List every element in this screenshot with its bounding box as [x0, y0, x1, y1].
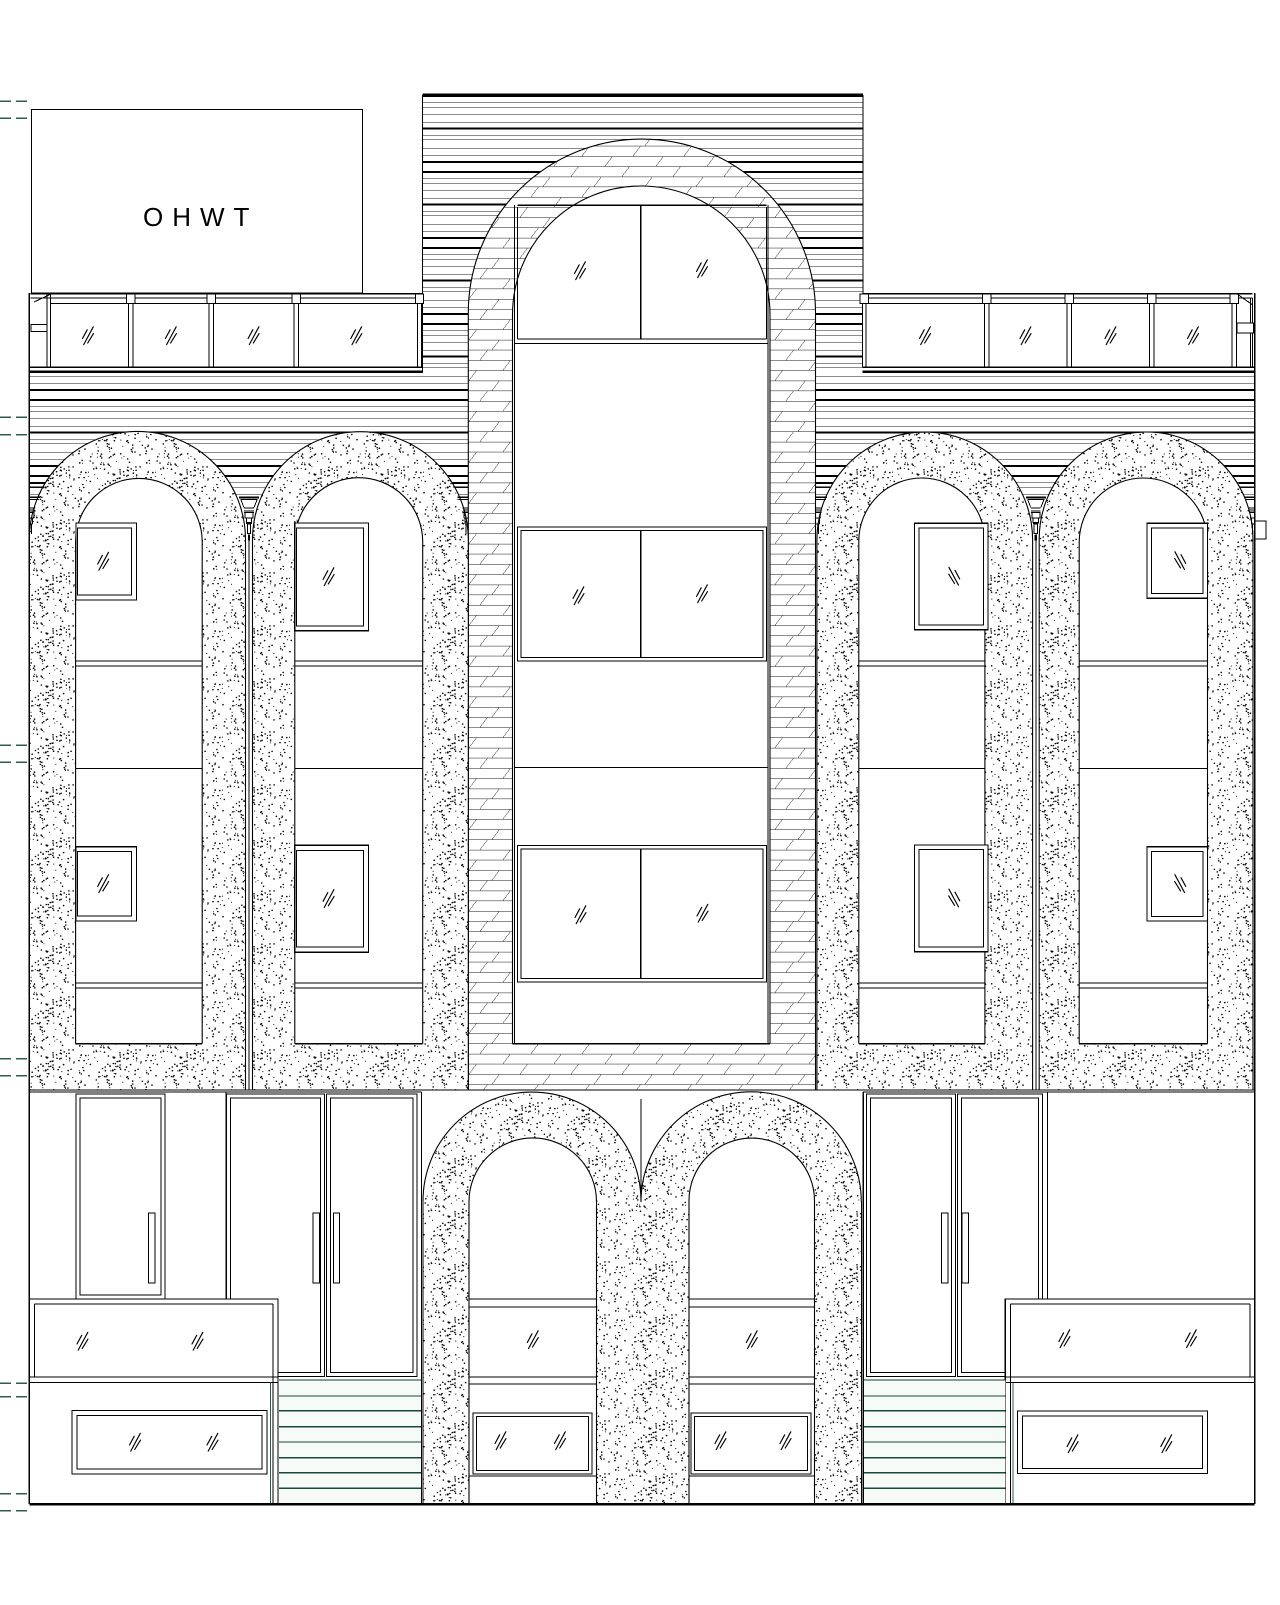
svg-text:OHWT: OHWT	[143, 202, 258, 232]
